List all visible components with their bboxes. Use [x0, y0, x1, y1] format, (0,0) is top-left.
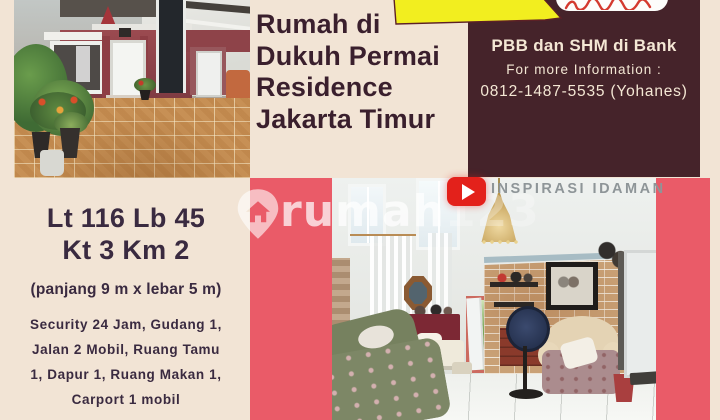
shelf-items [494, 272, 534, 282]
red-stripe-left [250, 178, 332, 420]
feature-line: Carport 1 mobil [6, 387, 246, 412]
interior-photo [332, 178, 710, 420]
contact-heading: PBB dan SHM di Bank [468, 36, 700, 56]
exterior-side-door [196, 51, 222, 97]
yellow-ribbon [393, 0, 565, 26]
mirror-glass [409, 282, 427, 304]
title-line: Jakarta Timur [256, 104, 468, 136]
standing-fan [506, 306, 550, 352]
specs-features: Security 24 Jam, Gudang 1, Jalan 2 Mobil… [6, 312, 246, 412]
exterior-door-pillar-left [102, 36, 110, 100]
play-icon [462, 184, 475, 200]
channel-watermark: INSPIRASI IDAMAN [491, 181, 666, 197]
price-badge [556, 0, 668, 11]
picture-content [557, 275, 579, 289]
exterior-glass-column [156, 0, 186, 93]
exterior-porch-lamp [119, 28, 131, 37]
specs-line-kt-km: Kt 3 Km 2 [6, 234, 246, 266]
exterior-window-awning [44, 32, 102, 40]
title-line: Dukuh Permai [256, 41, 468, 73]
exterior-window-curtain [76, 46, 90, 82]
flyer-canvas: Rumah di Dukuh Permai Residence Jakarta … [0, 0, 720, 420]
chandelier-crystals [480, 240, 518, 246]
fan-base [509, 389, 543, 399]
red-stripe-right [656, 178, 710, 420]
feature-line: 1, Dapur 1, Ruang Makan 1, [6, 362, 246, 387]
exterior-small-plant [134, 78, 156, 92]
script-text-fragment [564, 0, 660, 10]
specs-block: Lt 116 Lb 45 Kt 3 Km 2 (panjang 9 m x le… [6, 202, 246, 412]
phone-number: 0812-1487-5535 (Yohanes) [468, 83, 700, 101]
listing-title: Rumah di Dukuh Permai Residence Jakarta … [256, 9, 468, 135]
feature-line: Jalan 2 Mobil, Ruang Tamu [6, 337, 246, 362]
contact-panel: PBB dan SHM di Bank For more Information… [468, 0, 700, 177]
feature-line: Security 24 Jam, Gudang 1, [6, 312, 246, 337]
specs-line-lt-lb: Lt 116 Lb 45 [6, 202, 246, 234]
wall-shelf [490, 282, 538, 287]
contact-info-label: For more Information : [468, 62, 700, 77]
specs-dimensions: (panjang 9 m x lebar 5 m) [6, 281, 246, 299]
exterior-white-pot [40, 150, 64, 176]
title-line: Residence [256, 72, 468, 104]
framed-picture [546, 262, 598, 310]
fan-pole [523, 346, 527, 392]
exterior-photo [14, 0, 250, 178]
youtube-play-button[interactable] [447, 177, 486, 206]
